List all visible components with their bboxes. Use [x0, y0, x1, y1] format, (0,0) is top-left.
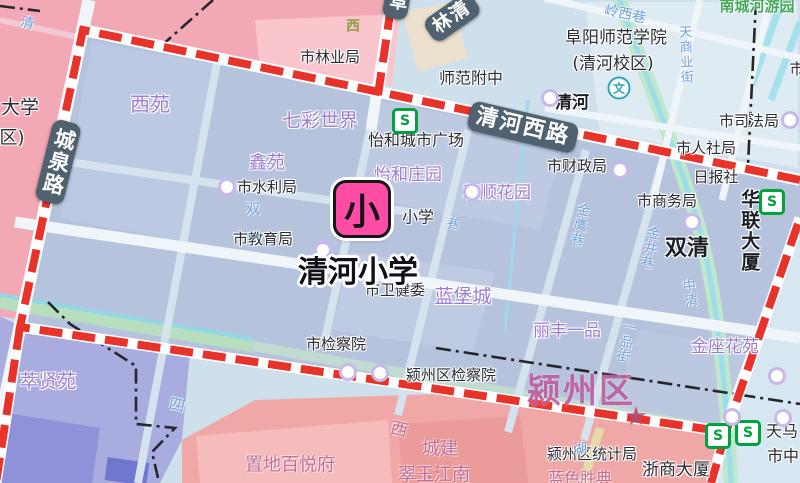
- res-cuixianyuan[interactable]: 萃贤苑: [19, 372, 76, 393]
- poi-fuyangshifanxueyuan[interactable]: 阜阳师范学院: [565, 29, 667, 47]
- poi-shirensheju[interactable]: 市人社局: [676, 140, 736, 156]
- park-nanchenghe: 南城河游园: [719, 0, 794, 14]
- res-chengjian[interactable]: 城建: [422, 439, 458, 458]
- poi-shishangwuju[interactable]: 市商务局: [637, 193, 697, 209]
- poi-shifanfuzhong[interactable]: 师范附中: [439, 69, 503, 86]
- street-hu: 湖: [573, 442, 587, 457]
- res-xinyuan[interactable]: 鑫苑: [249, 153, 285, 172]
- metro-station-icon[interactable]: S: [735, 420, 761, 446]
- poi-zheshangdasha[interactable]: 浙商大厦: [642, 461, 710, 479]
- res-lanbaocheng[interactable]: 蓝堡城: [434, 287, 491, 308]
- metro-station-icon[interactable]: S: [759, 189, 785, 215]
- poi-yingzhouqujianchayuan[interactable]: 颍州区检察院: [406, 367, 496, 383]
- street-zhongqing: 中清: [679, 278, 697, 310]
- poi-shicaizhengju[interactable]: 市财政局: [547, 158, 607, 174]
- poi-shiweijianwei[interactable]: 市卫健委: [365, 282, 425, 298]
- street-shuang: 双: [246, 202, 260, 217]
- poi-qu-partial: 区): [0, 128, 25, 147]
- poi-qinghexiaoqu[interactable]: (清河校区): [572, 55, 653, 73]
- res-jinzuohuayuan[interactable]: 金座花苑: [691, 338, 759, 356]
- street-xi-olive: 西: [346, 19, 360, 34]
- poi-shijiaoyuju[interactable]: 市教育局: [233, 231, 293, 247]
- poi-tianma[interactable]: 天马: [766, 422, 798, 439]
- metro-station-icon[interactable]: S: [705, 423, 731, 449]
- res-lanseshengdian[interactable]: 蓝色胜典: [548, 469, 612, 483]
- res-heshunhuayuan[interactable]: 和顺花园: [463, 184, 531, 202]
- poi-xiaoxue-partial[interactable]: 小学: [402, 208, 434, 225]
- school-marker-char: 小: [344, 183, 380, 235]
- poi-daxue-partial: 大学: [1, 98, 39, 119]
- res-xiyuan[interactable]: 西苑: [130, 94, 170, 116]
- res-zhidibaiyuefu[interactable]: 置地百悦府: [245, 455, 335, 474]
- poi-shilinyeju[interactable]: 市林业局: [300, 49, 360, 65]
- map-canvas[interactable]: 城泉路清河西路林清阜市林业局师范附中清河阜阳师范学院(清河校区)市司法局市人社局…: [0, 0, 800, 483]
- metro-station-icon[interactable]: S: [392, 108, 418, 134]
- poi-shuangqing[interactable]: 双清: [665, 237, 709, 261]
- poi-shisifaju[interactable]: 市司法局: [719, 113, 779, 129]
- res-qicaishijie[interactable]: 七彩世界: [282, 111, 358, 132]
- poi-shizhong[interactable]: 市中: [767, 447, 799, 464]
- poi-yingzhouqutongjiju[interactable]: 颍州区统计局: [547, 446, 637, 462]
- street-tianshangyejie: 天商业街: [676, 25, 692, 85]
- poi-ribaoshe[interactable]: 日报社: [693, 169, 738, 185]
- school-marker[interactable]: 小: [333, 180, 391, 238]
- poi-shijianchayuan[interactable]: 市检察院: [306, 336, 366, 352]
- poi-shi-partial[interactable]: 市: [789, 61, 800, 77]
- district-label-yingzhouqu: 颍州区: [527, 374, 635, 411]
- poi-hualiandasha[interactable]: 华联大厦: [739, 189, 760, 273]
- school-symbol-icon[interactable]: 文: [608, 77, 631, 100]
- poi-qinghe[interactable]: 清河: [555, 94, 589, 112]
- res-lifengyipin[interactable]: 丽丰一品: [533, 322, 601, 340]
- poi-shishuiliju[interactable]: 市水利局: [237, 179, 297, 195]
- res-cuiyujiangnan[interactable]: 翠玉江南: [398, 465, 470, 483]
- poi-yihechengshiguangchang[interactable]: 怡和城市广场: [368, 131, 464, 148]
